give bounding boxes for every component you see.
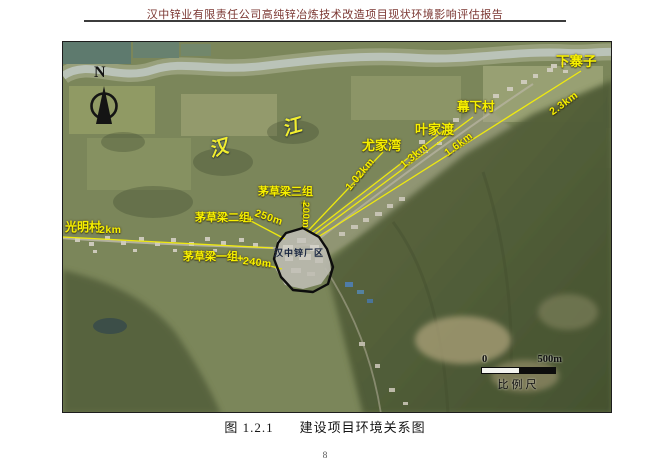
village-label-maocaoliang-1: 茅草梁一组 [183,252,238,263]
header-rule [84,20,566,22]
scale-bar-start: 0 [482,354,487,365]
page-number: 8 [0,451,650,461]
figure-caption: 图 1.2.1建设项目环境关系图 [0,417,650,436]
site-boundary-polygon [274,228,333,292]
satellite-map-figure: N 汉 江 汉中锌厂区 光明村 2km 茅草梁一组 + 240m 茅草梁二组 +… [62,41,612,413]
village-label-yejiadu: 叶家渡 [415,123,454,136]
scale-bar-end: 500m [538,354,563,365]
distance-label-guangmingcun: 2km [99,225,122,236]
figure-caption-title: 建设项目环境关系图 [300,420,426,435]
north-label: N [94,64,106,82]
village-label-guangmingcun: 光明村 [65,221,101,233]
measurement-lines [63,71,581,269]
distance-label-maocaoliang-3: 200m [301,202,311,228]
compass-icon [92,86,117,124]
scale-bar-black-segment [519,368,556,373]
village-label-youjiawan: 尤家湾 [362,139,401,152]
scale-bar-graphic [481,367,556,374]
village-label-maocaoliang-3: 茅草梁三组 [258,187,313,198]
figure-caption-number: 图 1.2.1 [224,420,273,435]
village-label-muxiacun: 幕下村 [457,101,495,114]
scale-bar-white-segment [482,368,519,373]
scale-bar-label: 比例尺 [481,376,556,392]
site-label: 汉中锌厂区 [274,246,324,259]
plus-marker-maocaoliang-2: + [247,215,253,226]
scale-bar: 0 500m 比例尺 [481,354,563,392]
village-label-maocaoliang-2: 茅草梁二组 [195,213,250,224]
village-label-xiazhaizi: 下寨子 [556,55,597,69]
